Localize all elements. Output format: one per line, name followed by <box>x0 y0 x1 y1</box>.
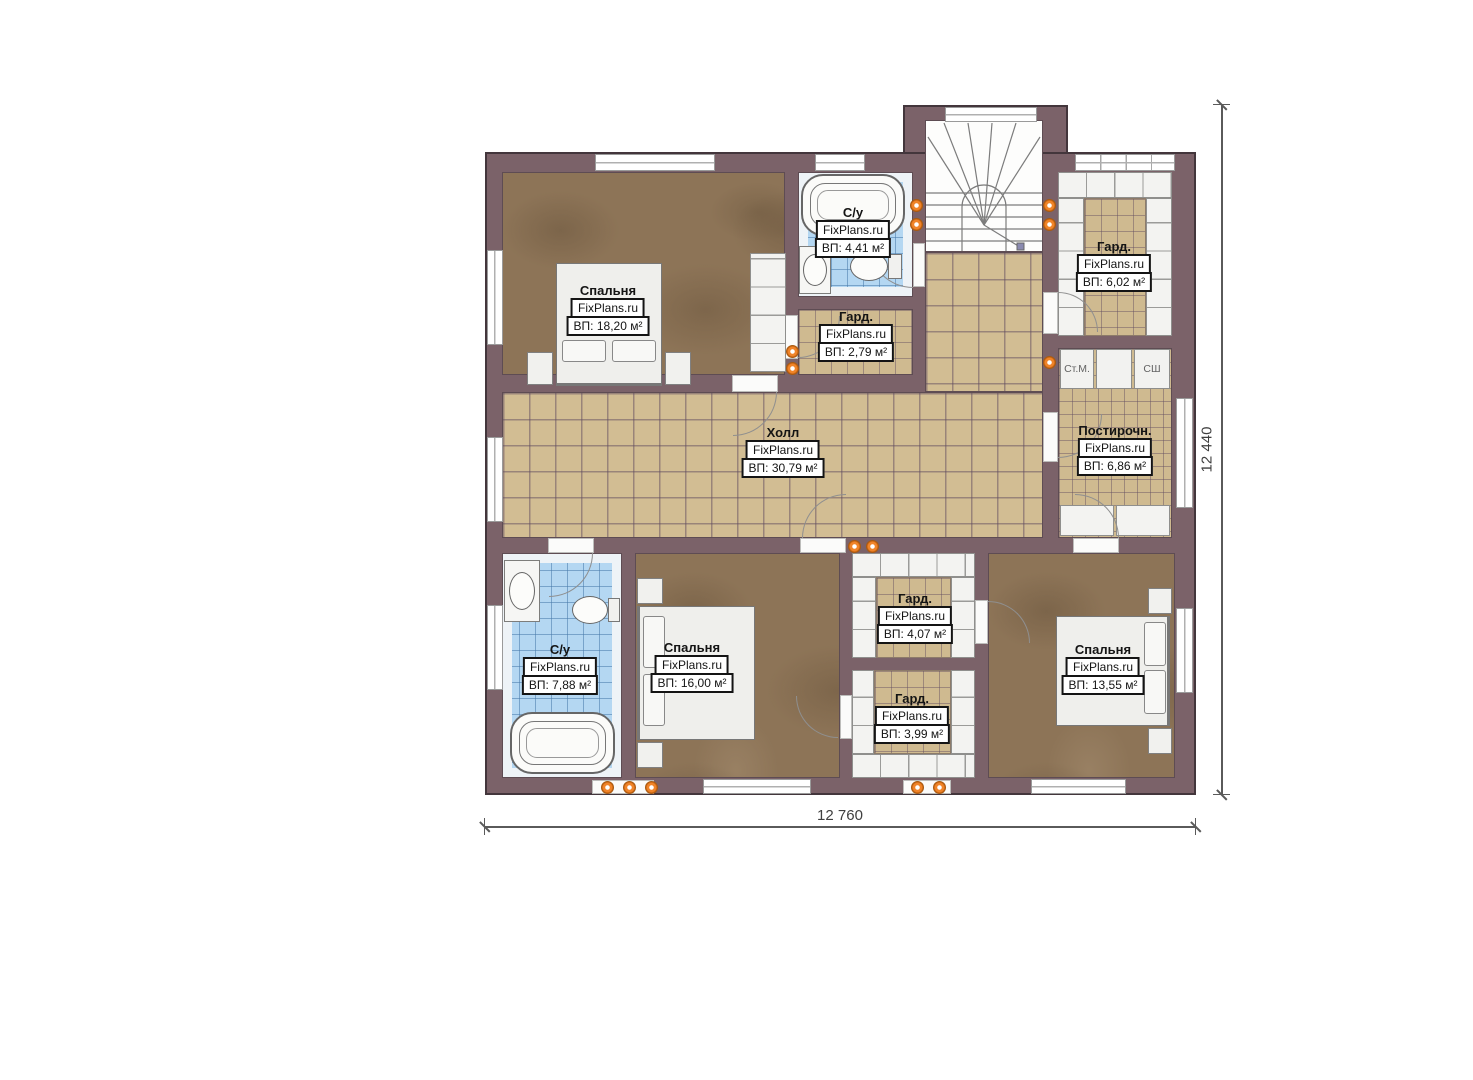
room-label-hall: Холл FixPlans.ru ВП: 30,79 м² <box>742 426 825 478</box>
wardrobe-cabinet <box>951 577 975 658</box>
toilet-tank <box>608 598 620 622</box>
area-box: ВП: 4,07 м² <box>877 624 953 644</box>
appliance-cell <box>1096 349 1132 389</box>
room-name: Гард. <box>839 310 873 325</box>
sink <box>509 572 535 610</box>
wardrobe-cabinet <box>1058 172 1172 198</box>
brand-box: FixPlans.ru <box>571 298 645 318</box>
dimension-line-bottom <box>485 826 1196 828</box>
floor-plan-canvas: Ст.М. СШ <box>0 0 1473 1080</box>
brand-box: FixPlans.ru <box>875 706 949 726</box>
window <box>1075 154 1175 171</box>
door-gap <box>732 375 778 392</box>
door-gap <box>1043 412 1058 462</box>
window <box>487 250 503 345</box>
room-name: Спальня <box>1075 643 1131 658</box>
window <box>1176 398 1193 508</box>
stairwell-floor <box>925 120 1043 252</box>
pillow <box>1144 622 1166 666</box>
dimension-label-right: 12 440 <box>1199 415 1216 485</box>
nightstand <box>1148 588 1172 614</box>
pillow <box>562 340 606 362</box>
door-gap <box>548 538 594 553</box>
area-box: ВП: 6,02 м² <box>1076 272 1152 292</box>
brand-box: FixPlans.ru <box>746 440 820 460</box>
wardrobe-cabinet <box>852 670 874 754</box>
room-label-wardrobe-middle-lower: Гард. FixPlans.ru ВП: 3,99 м² <box>874 692 950 744</box>
door-gap <box>1073 538 1119 553</box>
room-name: Холл <box>767 426 800 441</box>
socket-marker <box>786 362 799 375</box>
socket-marker <box>848 540 861 553</box>
wardrobe-cabinet <box>852 754 975 778</box>
washer-label: Ст.М. <box>1064 363 1090 375</box>
socket-marker <box>1043 356 1056 369</box>
door-gap <box>975 600 988 644</box>
brand-box: FixPlans.ru <box>819 324 893 344</box>
washing-machine: Ст.М. <box>1060 349 1094 389</box>
room-name: С/у <box>843 206 863 221</box>
socket-marker <box>910 218 923 231</box>
room-label-bathroom-top: С/у FixPlans.ru ВП: 4,41 м² <box>815 206 891 258</box>
brand-box: FixPlans.ru <box>1078 438 1152 458</box>
room-label-bedroom-top-left: Спальня FixPlans.ru ВП: 18,20 м² <box>567 284 650 336</box>
dimension-label-bottom: 12 760 <box>817 807 863 824</box>
area-box: ВП: 30,79 м² <box>742 458 825 478</box>
brand-box: FixPlans.ru <box>816 220 890 240</box>
nightstand <box>1148 728 1172 754</box>
socket-marker <box>1043 218 1056 231</box>
wardrobe-cabinet <box>750 253 786 372</box>
area-box: ВП: 6,86 м² <box>1077 456 1153 476</box>
socket-marker <box>910 199 923 212</box>
nightstand <box>637 742 663 768</box>
window <box>487 437 503 522</box>
brand-box: FixPlans.ru <box>523 657 597 677</box>
window <box>815 154 865 171</box>
room-name: С/у <box>550 643 570 658</box>
brand-box: FixPlans.ru <box>878 606 952 626</box>
area-box: ВП: 4,41 м² <box>815 238 891 258</box>
door-gap <box>800 538 846 553</box>
window <box>595 154 715 171</box>
socket-marker <box>645 781 658 794</box>
pillow <box>1144 670 1166 714</box>
socket-marker <box>1043 199 1056 212</box>
pillow <box>612 340 656 362</box>
room-label-bedroom-bottom-middle: Спальня FixPlans.ru ВП: 16,00 м² <box>651 641 734 693</box>
room-name: Спальня <box>580 284 636 299</box>
room-label-bathroom-bottom: С/у FixPlans.ru ВП: 7,88 м² <box>522 643 598 695</box>
area-box: ВП: 13,55 м² <box>1062 675 1145 695</box>
dimension-line-right <box>1221 105 1223 795</box>
brand-box: FixPlans.ru <box>1066 657 1140 677</box>
room-label-wardrobe-middle-upper: Гард. FixPlans.ru ВП: 4,07 м² <box>877 592 953 644</box>
nightstand <box>637 578 663 604</box>
area-box: ВП: 2,79 м² <box>818 342 894 362</box>
room-label-wardrobe-top-center: Гард. FixPlans.ru ВП: 2,79 м² <box>818 310 894 362</box>
socket-marker <box>623 781 636 794</box>
socket-marker <box>866 540 879 553</box>
staircase <box>926 121 1042 251</box>
room-label-bedroom-bottom-right: Спальня FixPlans.ru ВП: 13,55 м² <box>1062 643 1145 695</box>
corridor-floor <box>925 252 1043 392</box>
door-gap <box>840 695 852 739</box>
door-gap <box>1043 292 1058 334</box>
room-name: Гард. <box>898 592 932 607</box>
socket-marker <box>601 781 614 794</box>
area-box: ВП: 16,00 м² <box>651 673 734 693</box>
brand-box: FixPlans.ru <box>1077 254 1151 274</box>
room-name: Спальня <box>664 641 720 656</box>
wardrobe-cabinet <box>852 553 975 577</box>
laundry-cabinet <box>1116 505 1170 536</box>
nightstand <box>665 352 691 385</box>
dryer-label: СШ <box>1143 363 1160 375</box>
room-name: Постирочн. <box>1078 424 1151 439</box>
socket-marker <box>786 345 799 358</box>
room-label-wardrobe-top-right: Гард. FixPlans.ru ВП: 6,02 м² <box>1076 240 1152 292</box>
window <box>1031 779 1126 794</box>
socket-marker <box>911 781 924 794</box>
area-box: ВП: 3,99 м² <box>874 724 950 744</box>
area-box: ВП: 18,20 м² <box>567 316 650 336</box>
nightstand <box>527 352 553 385</box>
bathtub <box>510 712 615 774</box>
area-box: ВП: 7,88 м² <box>522 675 598 695</box>
sink <box>803 254 827 286</box>
drying-cabinet: СШ <box>1134 349 1170 389</box>
window <box>1176 608 1193 693</box>
wardrobe-cabinet <box>852 577 876 658</box>
door-gap <box>913 243 925 287</box>
window <box>487 605 503 690</box>
room-name: Гард. <box>895 692 929 707</box>
socket-marker <box>933 781 946 794</box>
brand-box: FixPlans.ru <box>655 655 729 675</box>
window <box>945 107 1037 122</box>
room-label-laundry: Постирочн. FixPlans.ru ВП: 6,86 м² <box>1077 424 1153 476</box>
window <box>703 779 811 794</box>
toilet <box>572 596 608 624</box>
wardrobe-cabinet <box>951 670 975 754</box>
room-name: Гард. <box>1097 240 1131 255</box>
